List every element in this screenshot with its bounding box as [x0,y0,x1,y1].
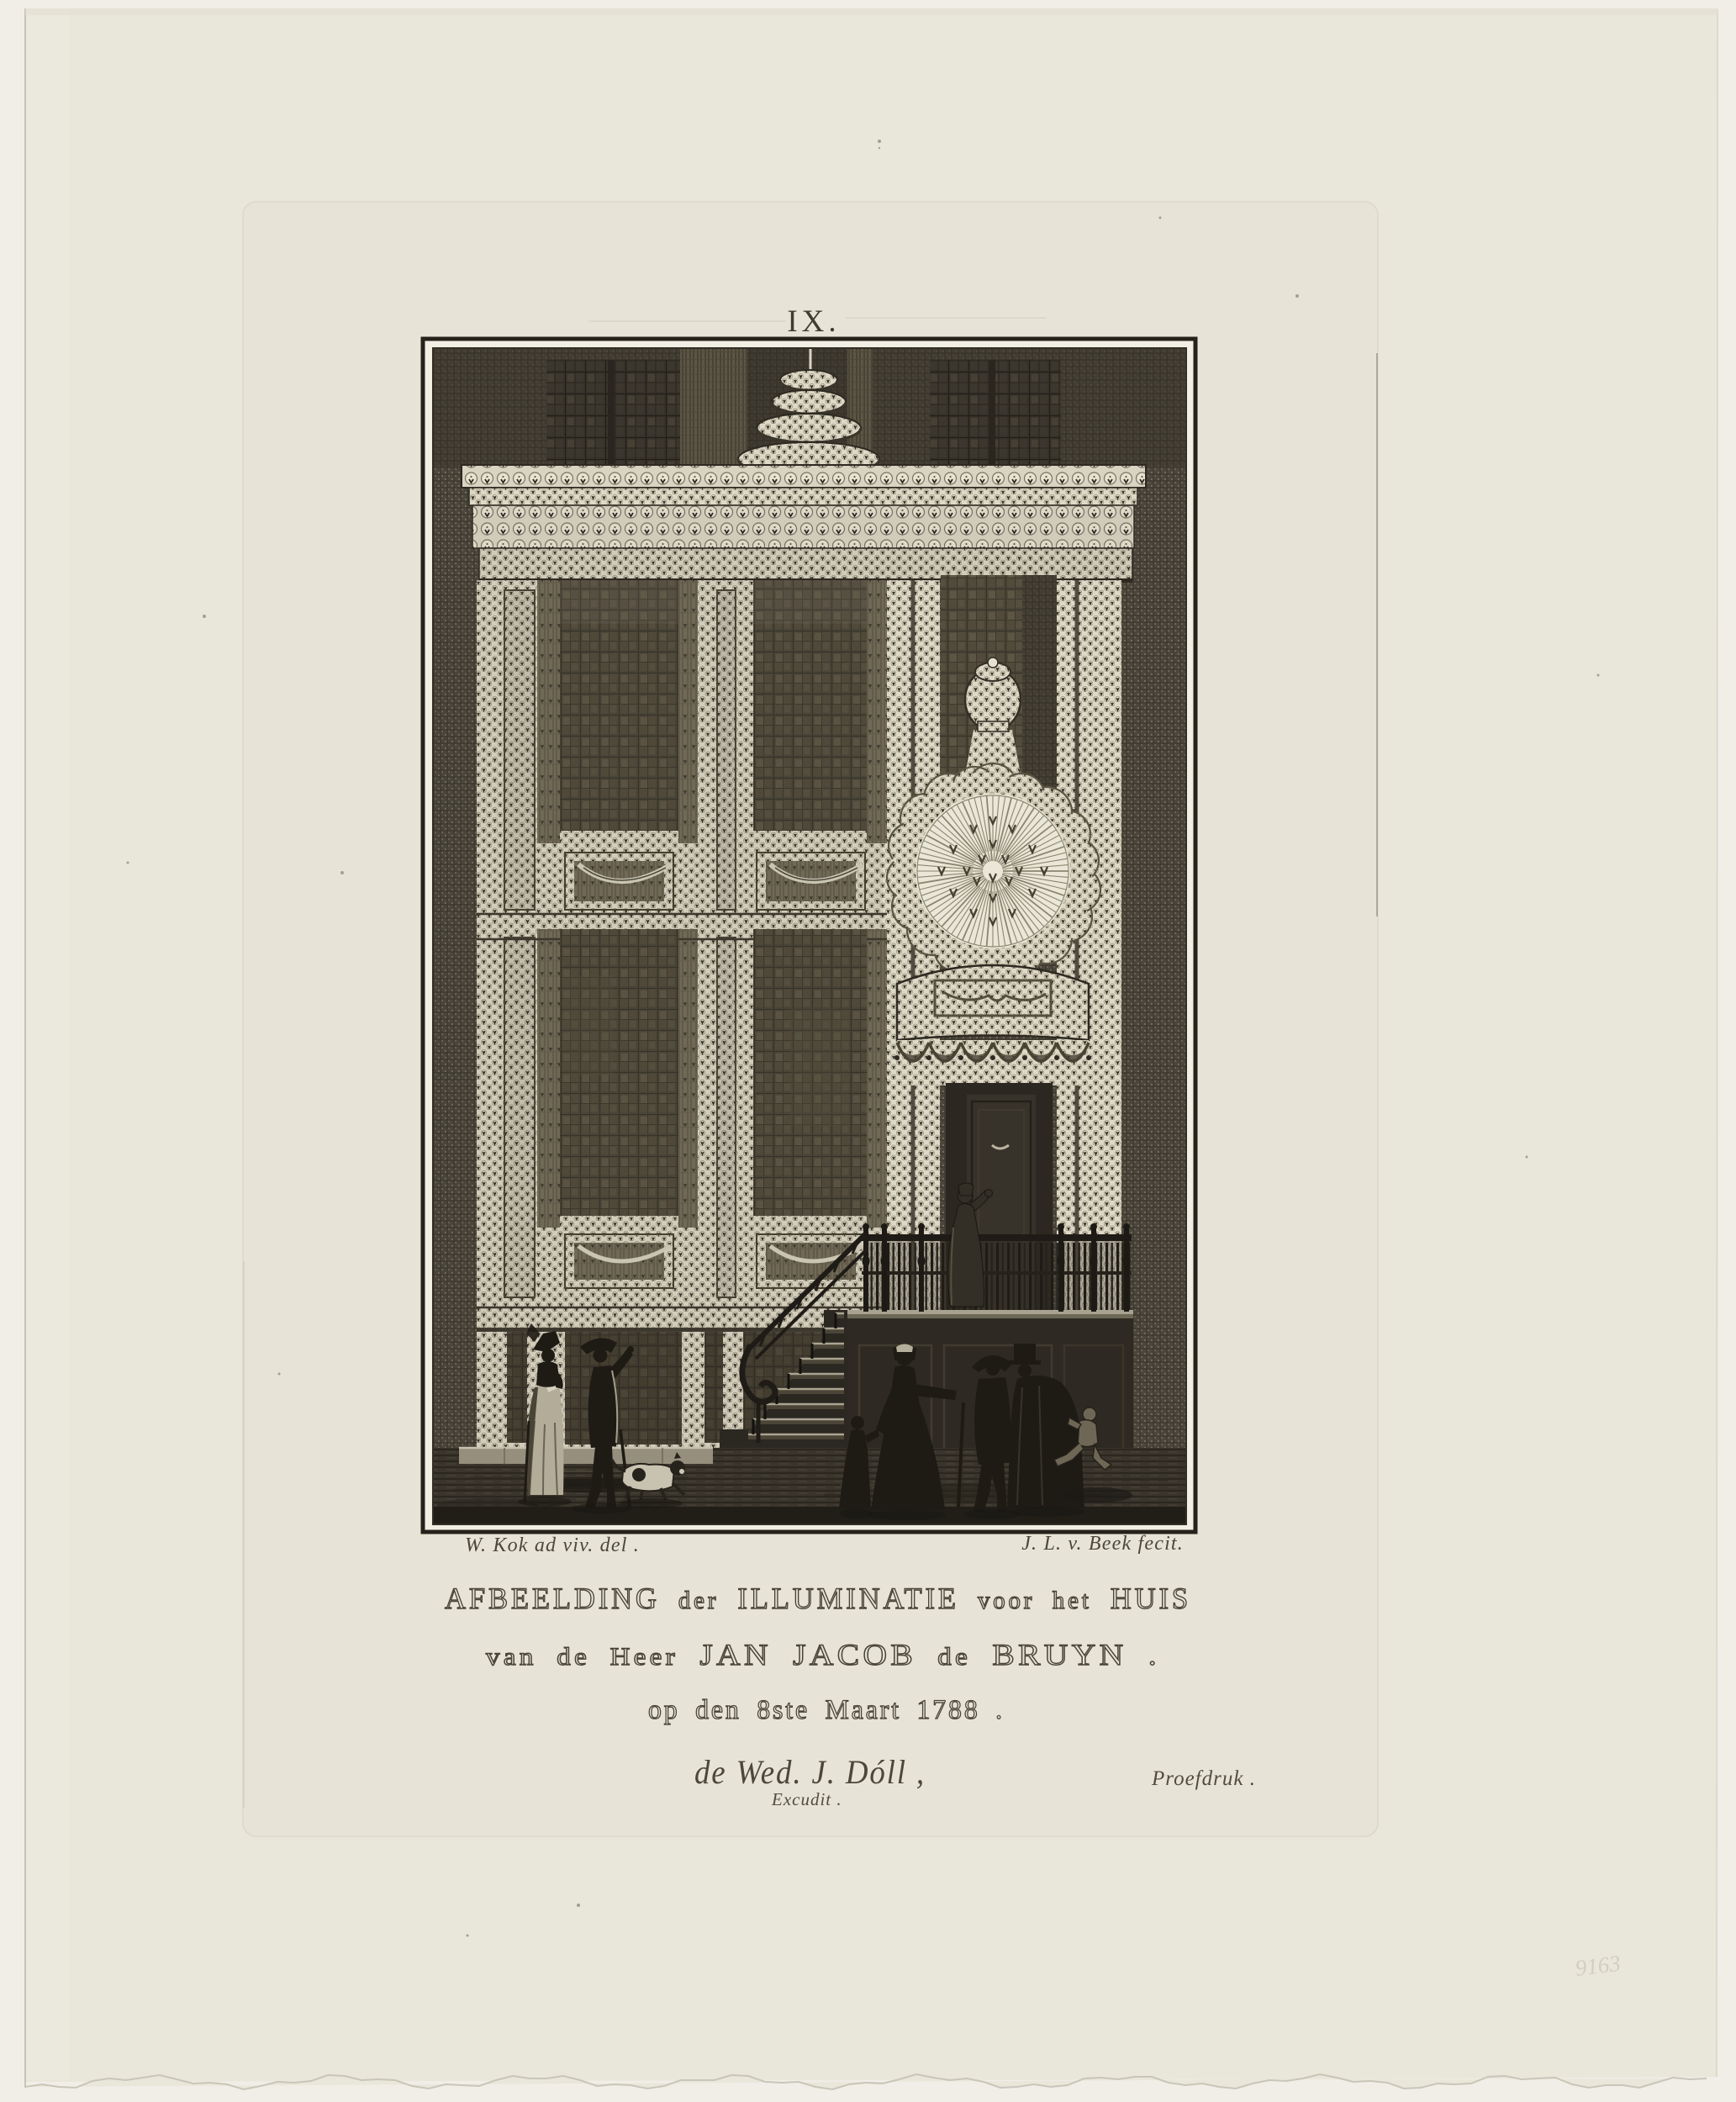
svg-text:AFBEELDING der ILLUMINATIE voo: AFBEELDING der ILLUMINATIE voor het HUIS [445,1582,1191,1615]
svg-text:J. L. v. Beek fecit.: J. L. v. Beek fecit. [1021,1533,1184,1555]
svg-text:W. Kok ad viv. del .: W. Kok ad viv. del . [465,1534,640,1556]
svg-text:van de Heer JAN JACOB de BRUYN: van de Heer JAN JACOB de BRUYN . [486,1638,1160,1672]
svg-text:Proefdruk .: Proefdruk . [1151,1767,1256,1790]
svg-text:IX.: IX. [787,304,840,339]
svg-text:Excudit .: Excudit . [771,1789,842,1809]
svg-text:de Wed. J. Dóll ,: de Wed. J. Dóll , [694,1753,926,1791]
svg-text:op den 8ste Maart 1788 .: op den 8ste Maart 1788 . [648,1695,1005,1725]
